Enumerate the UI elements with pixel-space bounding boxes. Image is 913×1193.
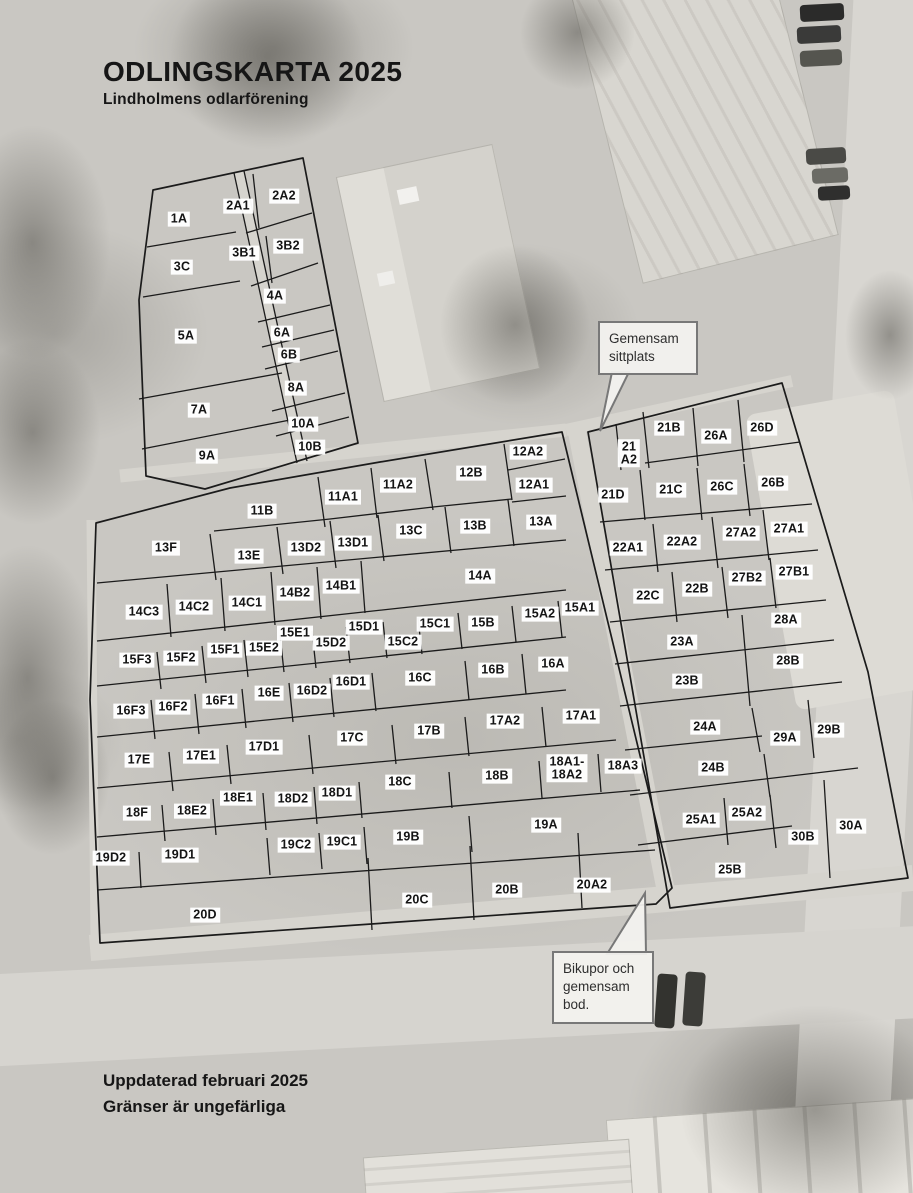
plot-label: 27B1 xyxy=(776,565,813,580)
plot-label: 17A1 xyxy=(563,709,600,724)
plot-label: 19B xyxy=(393,830,423,845)
plot-label: 22C xyxy=(633,589,663,604)
plot-label: 6A xyxy=(271,326,293,341)
plot-label: 21 A2 xyxy=(618,439,640,467)
plot-label: 20A2 xyxy=(574,878,611,893)
plot-label: 16E xyxy=(255,686,284,701)
plot-label: 19A xyxy=(531,818,561,833)
plot-label: 11B xyxy=(248,504,277,519)
plot-label: 29B xyxy=(814,723,844,738)
plot-label: 23A xyxy=(667,635,697,650)
plot-label: 19C1 xyxy=(324,835,361,850)
plot-label: 15A1 xyxy=(562,601,599,616)
plot-label: 7A xyxy=(188,403,210,418)
plot-label: 23B xyxy=(672,674,702,689)
plot-label: 10A xyxy=(288,417,318,432)
plot-label: 17B xyxy=(414,724,444,739)
plot-label: 18D2 xyxy=(275,792,312,807)
plot-label: 16C xyxy=(405,671,435,686)
plot-label: 10B xyxy=(295,440,325,455)
map-title-block: ODLINGSKARTA 2025 Lindholmens odlarfören… xyxy=(103,56,402,109)
plot-label: 3C xyxy=(171,260,193,275)
plot-label: 30B xyxy=(788,830,818,845)
map-title: ODLINGSKARTA 2025 xyxy=(103,56,402,88)
map-footer: Uppdaterad februari 2025 Gränser är unge… xyxy=(103,1068,308,1119)
plot-label: 24B xyxy=(698,761,728,776)
plot-label: 18E1 xyxy=(220,791,256,806)
plot-label: 26B xyxy=(758,476,788,491)
plot-label: 16B xyxy=(478,663,508,678)
plot-label: 21C xyxy=(656,483,686,498)
plot-label: 18A1- 18A2 xyxy=(546,754,587,782)
plot-label: 16F2 xyxy=(155,700,190,715)
plot-label: 28A xyxy=(771,613,801,628)
plot-label: 22A2 xyxy=(664,535,701,550)
plot-label: 19C2 xyxy=(278,838,315,853)
plot-label: 27A2 xyxy=(723,526,760,541)
plot-label: 30A xyxy=(836,819,866,834)
plot-label: 5A xyxy=(175,329,197,344)
plot-label: 18F xyxy=(123,806,151,821)
plot-label: 20C xyxy=(402,893,432,908)
plot-label: 8A xyxy=(285,381,307,396)
plot-label: 17E xyxy=(125,753,154,768)
plot-label: 4A xyxy=(264,289,286,304)
plot-label: 17E1 xyxy=(183,749,219,764)
plot-label: 20B xyxy=(492,883,522,898)
plot-label: 12A1 xyxy=(516,478,553,493)
plot-label: 18C xyxy=(385,775,415,790)
plot-label: 6B xyxy=(278,348,300,363)
plot-label: 18D1 xyxy=(319,786,356,801)
plot-label: 9A xyxy=(196,449,218,464)
plot-label: 25B xyxy=(715,863,745,878)
plot-label: 19D1 xyxy=(162,848,199,863)
plot-label: 15E1 xyxy=(277,626,313,641)
plot-label: 15B xyxy=(468,616,498,631)
plot-label: 14C2 xyxy=(176,600,213,615)
plot-label: 14B1 xyxy=(323,579,360,594)
plot-label: 25A2 xyxy=(729,806,766,821)
plot-label: 18E2 xyxy=(174,804,210,819)
plot-label: 11A1 xyxy=(325,490,361,505)
plot-label: 20D xyxy=(190,908,220,923)
map-subtitle: Lindholmens odlarförening xyxy=(103,91,402,109)
plot-label: 13E xyxy=(235,549,264,564)
plot-label: 19D2 xyxy=(93,851,130,866)
map-canvas: 1A2A12A23C3B13B24A5A6A6B8A7A10A10B9A11B1… xyxy=(0,0,913,1193)
plot-label: 12B xyxy=(456,466,486,481)
plot-labels-layer: 1A2A12A23C3B13B24A5A6A6B8A7A10A10B9A11B1… xyxy=(0,0,913,1193)
plot-label: 13B xyxy=(460,519,490,534)
plot-label: 16F1 xyxy=(202,694,237,709)
plot-label: 16A xyxy=(538,657,568,672)
plot-label: 16D2 xyxy=(294,684,331,699)
plot-label: 15C1 xyxy=(417,617,454,632)
plot-label: 11A2 xyxy=(380,478,416,493)
plot-label: 15E2 xyxy=(246,641,282,656)
plot-label: 12A2 xyxy=(510,445,547,460)
plot-label: 14C3 xyxy=(126,605,163,620)
plot-label: 3B2 xyxy=(273,239,303,254)
plot-label: 21D xyxy=(598,488,628,503)
plot-label: 22A1 xyxy=(610,541,647,556)
footer-disclaimer: Gränser är ungefärliga xyxy=(103,1094,308,1120)
plot-label: 24A xyxy=(690,720,720,735)
plot-label: 15D2 xyxy=(313,636,350,651)
plot-label: 1A xyxy=(168,212,190,227)
plot-label: 26C xyxy=(707,480,737,495)
plot-label: 15A2 xyxy=(522,607,559,622)
plot-label: 16F3 xyxy=(113,704,148,719)
plot-label: 13D2 xyxy=(288,541,325,556)
plot-label: 14C1 xyxy=(229,596,266,611)
plot-label: 2A1 xyxy=(223,199,253,214)
plot-label: 13C xyxy=(396,524,426,539)
plot-label: 21B xyxy=(654,421,684,436)
plot-label: 15F2 xyxy=(163,651,198,666)
plot-label: 14A xyxy=(465,569,495,584)
plot-label: 25A1 xyxy=(683,813,720,828)
plot-label: 18A3 xyxy=(605,759,642,774)
plot-label: 2A2 xyxy=(269,189,299,204)
plot-label: 17A2 xyxy=(487,714,524,729)
plot-label: 13A xyxy=(526,515,556,530)
plot-label: 14B2 xyxy=(277,586,314,601)
plot-label: 15C2 xyxy=(385,635,422,650)
plot-label: 17D1 xyxy=(246,740,283,755)
plot-label: 27B2 xyxy=(729,571,766,586)
plot-label: 16D1 xyxy=(333,675,370,690)
plot-label: 13F xyxy=(152,541,180,556)
plot-label: 3B1 xyxy=(229,246,259,261)
plot-label: 17C xyxy=(337,731,367,746)
footer-updated: Uppdaterad februari 2025 xyxy=(103,1068,308,1094)
callout-bikupor: Bikupor och gemensam bod. xyxy=(552,951,654,1024)
plot-label: 26A xyxy=(701,429,731,444)
plot-label: 18B xyxy=(482,769,512,784)
plot-label: 15D1 xyxy=(346,620,383,635)
plot-label: 15F1 xyxy=(207,643,242,658)
plot-label: 27A1 xyxy=(771,522,808,537)
plot-label: 26D xyxy=(747,421,777,436)
callout-gemensam-sittplats: Gemensam sittplats xyxy=(598,321,698,375)
plot-label: 29A xyxy=(770,731,800,746)
plot-label: 28B xyxy=(773,654,803,669)
plot-label: 22B xyxy=(682,582,712,597)
plot-label: 15F3 xyxy=(119,653,154,668)
plot-label: 13D1 xyxy=(335,536,372,551)
